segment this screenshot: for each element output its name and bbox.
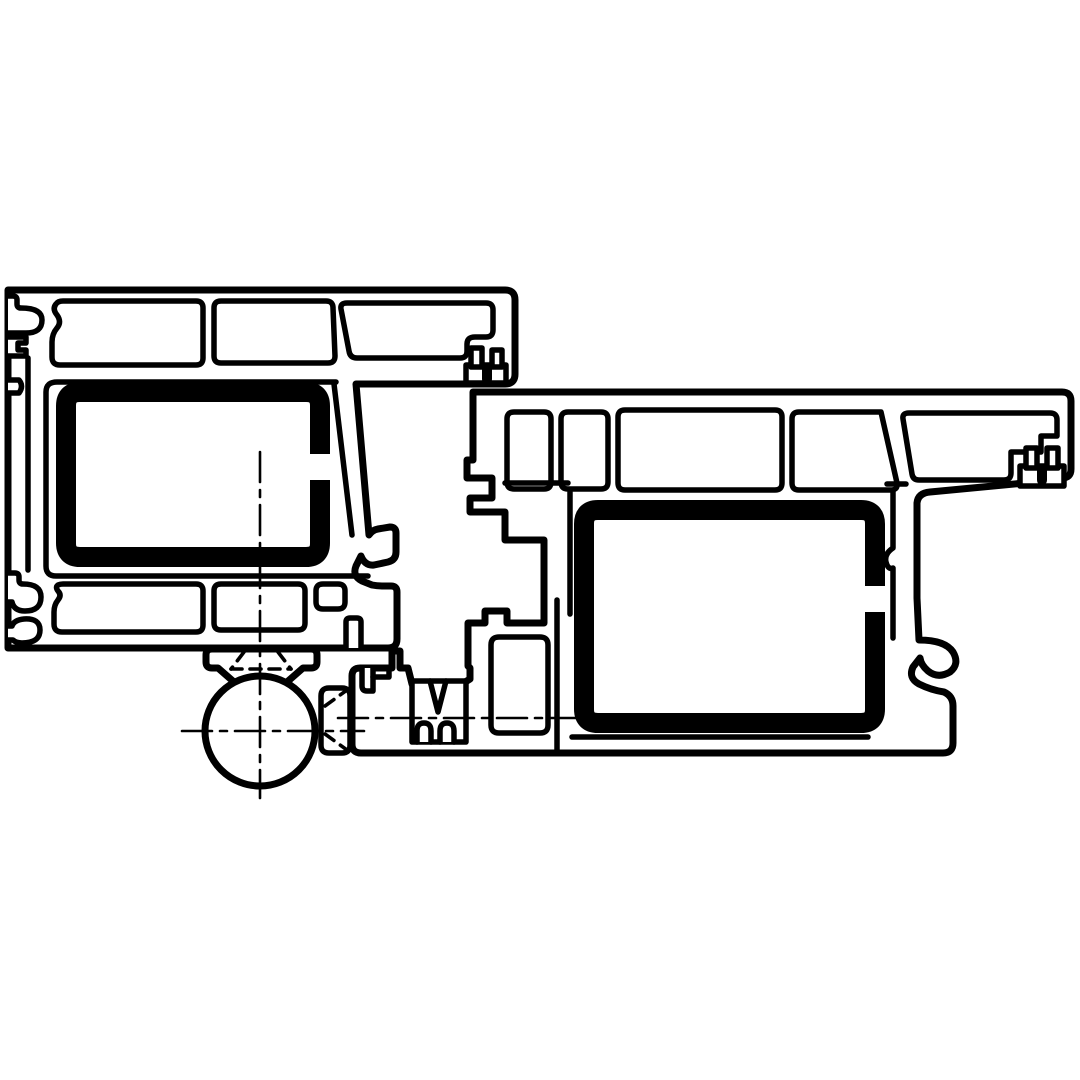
leaf-hardware-groove-tongue [1037, 466, 1047, 485]
profile-cross-section-drawing [0, 0, 1080, 1080]
threshold-clip-unotch-2 [440, 723, 454, 742]
hinge-spacer-block [321, 688, 350, 753]
frame-hardware-groove-lobe-2 [492, 350, 502, 367]
leaf-chamber-2 [561, 412, 608, 489]
leaf-hardware-groove-lobe-1 [1026, 448, 1037, 468]
technical-drawing-page [0, 0, 1080, 1080]
leaf-chamber-4 [792, 412, 897, 490]
frame-chamber-bottom-3 [316, 584, 345, 609]
leaf-steel-seam-gap [864, 586, 888, 612]
frame-hardware-groove-tongue [482, 365, 492, 384]
leaf-chamber-1 [507, 412, 551, 489]
frame-hardware-groove-lobe-1 [471, 348, 482, 367]
frame-chamber-top-2 [214, 301, 335, 363]
frame-chamber-top-1 [52, 301, 203, 365]
frame-chamber-bottom-1 [54, 584, 203, 632]
frame-bottom-slot [346, 618, 361, 648]
leaf-chamber-3 [618, 410, 782, 490]
leaf-hardware-groove-lobe-2 [1047, 448, 1058, 468]
threshold-clip-unotch-1 [417, 723, 431, 742]
threshold-clip-slot [362, 668, 373, 691]
frame-steel-seam-gap [306, 454, 332, 480]
frame-gasket-pocket-lower-2 [8, 619, 40, 643]
frame-gasket-groove-small [8, 380, 22, 393]
